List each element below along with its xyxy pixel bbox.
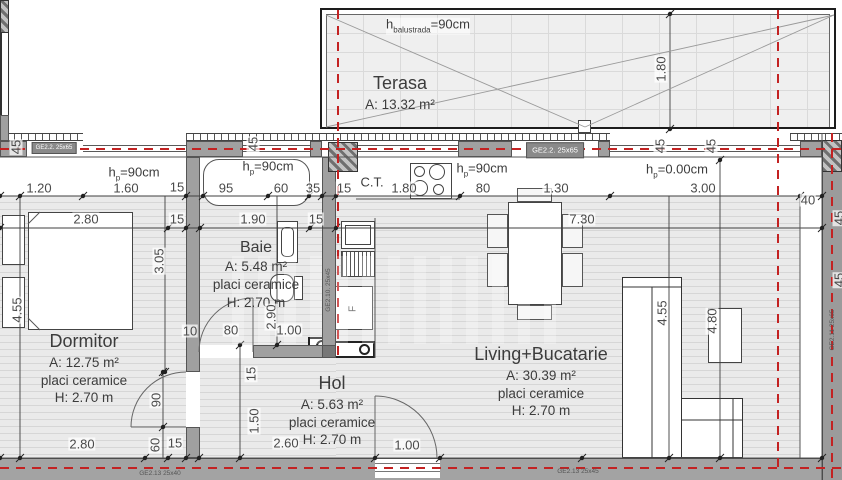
- dimension-label: 10: [182, 325, 198, 338]
- dimension-label: 15: [169, 181, 185, 194]
- dimension-label: 45: [247, 136, 260, 152]
- room-floor-finish: placi ceramice: [41, 372, 127, 390]
- dimension-label: 4.80: [706, 307, 719, 334]
- room-name: Baie: [213, 237, 299, 258]
- living-label: Living+Bucatarie A: 30.39 m² placi ceram…: [474, 343, 608, 420]
- dimension-label: 15: [308, 213, 324, 226]
- dimension-label: 40: [800, 194, 816, 207]
- dimension-label: 1.90: [239, 213, 266, 226]
- dimension-label: 15: [336, 182, 352, 195]
- axis-line: [831, 133, 833, 480]
- dimension-label: 1.00: [393, 439, 420, 452]
- fridge-label: F: [348, 306, 359, 312]
- dimension-label: 2.90: [265, 303, 278, 330]
- dormitor-label: Dormitor A: 12.75 m² placi ceramice H: 2…: [41, 330, 127, 407]
- parapet-height-label: hbalustrada=90cm: [386, 18, 470, 35]
- dimension-label: 3.05: [153, 247, 166, 274]
- dimension-label: 1.50: [248, 407, 261, 434]
- dimension-label: 95: [218, 182, 234, 195]
- wall-tag: GE2.13 25x40: [139, 471, 181, 478]
- room-area: A: 12.75 m²: [41, 354, 127, 372]
- dimension-label: 45: [654, 138, 667, 154]
- room-floor-finish: placi ceramice: [474, 385, 608, 403]
- baie-label: Baie A: 5.48 m² placi ceramice H: 2.70 m: [213, 237, 299, 312]
- axis-line: [0, 467, 842, 469]
- axis-line: [777, 10, 779, 470]
- room-name: Hol: [289, 372, 375, 396]
- dimension-label: 4.55: [656, 299, 669, 326]
- parapet-height-label: hp=90cm: [456, 162, 507, 179]
- room-height: H: 2.70 m: [41, 389, 127, 407]
- room-height: H: 2.70 m: [289, 431, 375, 449]
- room-floor-finish: placi ceramice: [289, 414, 375, 432]
- room-area: A: 5.48 m²: [213, 258, 299, 276]
- dimension-label: 2.60: [272, 437, 299, 450]
- room-area: A: 5.63 m²: [289, 396, 375, 414]
- dimension-label: 15: [169, 213, 185, 226]
- dimension-label: 90: [150, 392, 163, 408]
- dimension-label: 60: [149, 437, 162, 453]
- dimension-label: 45: [833, 210, 842, 226]
- dimension-label: 15: [167, 437, 183, 450]
- dimension-label: 1.60: [112, 182, 139, 195]
- dimension-label: 1.20: [25, 182, 52, 195]
- dimension-label: 7.30: [568, 213, 595, 226]
- room-area: A: 30.39 m²: [474, 367, 608, 385]
- dimension-label: 1.00: [275, 324, 302, 337]
- room-name: Living+Bucatarie: [474, 343, 608, 367]
- dimension-label: 2.80: [68, 438, 95, 451]
- room-name: Dormitor: [41, 330, 127, 354]
- floor-plan: Terasa A: 13.32 m² Dormitor A: 12.75 m² …: [0, 0, 842, 480]
- room-height: H: 2.70 m: [474, 402, 608, 420]
- dimension-label: 15: [245, 366, 258, 382]
- dimension-label: 35: [305, 182, 321, 195]
- terasa-label: Terasa A: 13.32 m²: [365, 72, 435, 114]
- wall-tag: GE2.2. 25x65: [526, 142, 584, 158]
- wall-tag: GE2.10. 25x45: [326, 268, 333, 311]
- dimension-label: 4.55: [11, 296, 24, 323]
- dimension-label: 80: [475, 182, 491, 195]
- room-floor-finish: placi ceramice: [213, 276, 299, 294]
- boiler-label: C.T.: [360, 175, 383, 190]
- dimension-label: 60: [273, 182, 289, 195]
- parapet-height-label: hp=0.00cm: [646, 163, 708, 180]
- dimension-label: 45: [10, 139, 23, 155]
- dimension-label: 80: [223, 324, 239, 337]
- wall-tag: GE2.11 25x65: [830, 309, 837, 350]
- dimension-label: 45: [833, 272, 842, 288]
- wall-tag: GE2.2. 25x65: [32, 142, 77, 154]
- dimension-label: 1.30: [542, 182, 569, 195]
- dimension-label: 1.80: [655, 55, 668, 82]
- dimension-label: 2.80: [72, 213, 99, 226]
- parapet-height-label: hp=90cm: [242, 160, 293, 177]
- wall-tag: GE2.13 25x45: [557, 469, 599, 476]
- dimension-label: 3.00: [689, 182, 716, 195]
- dimension-label: 1.80: [390, 182, 417, 195]
- room-area: A: 13.32 m²: [365, 96, 435, 114]
- dimension-label: 45: [705, 138, 718, 154]
- room-name: Terasa: [365, 72, 435, 96]
- hol-label: Hol A: 5.63 m² placi ceramice H: 2.70 m: [289, 372, 375, 449]
- room-height: H: 2.70 m: [213, 294, 299, 312]
